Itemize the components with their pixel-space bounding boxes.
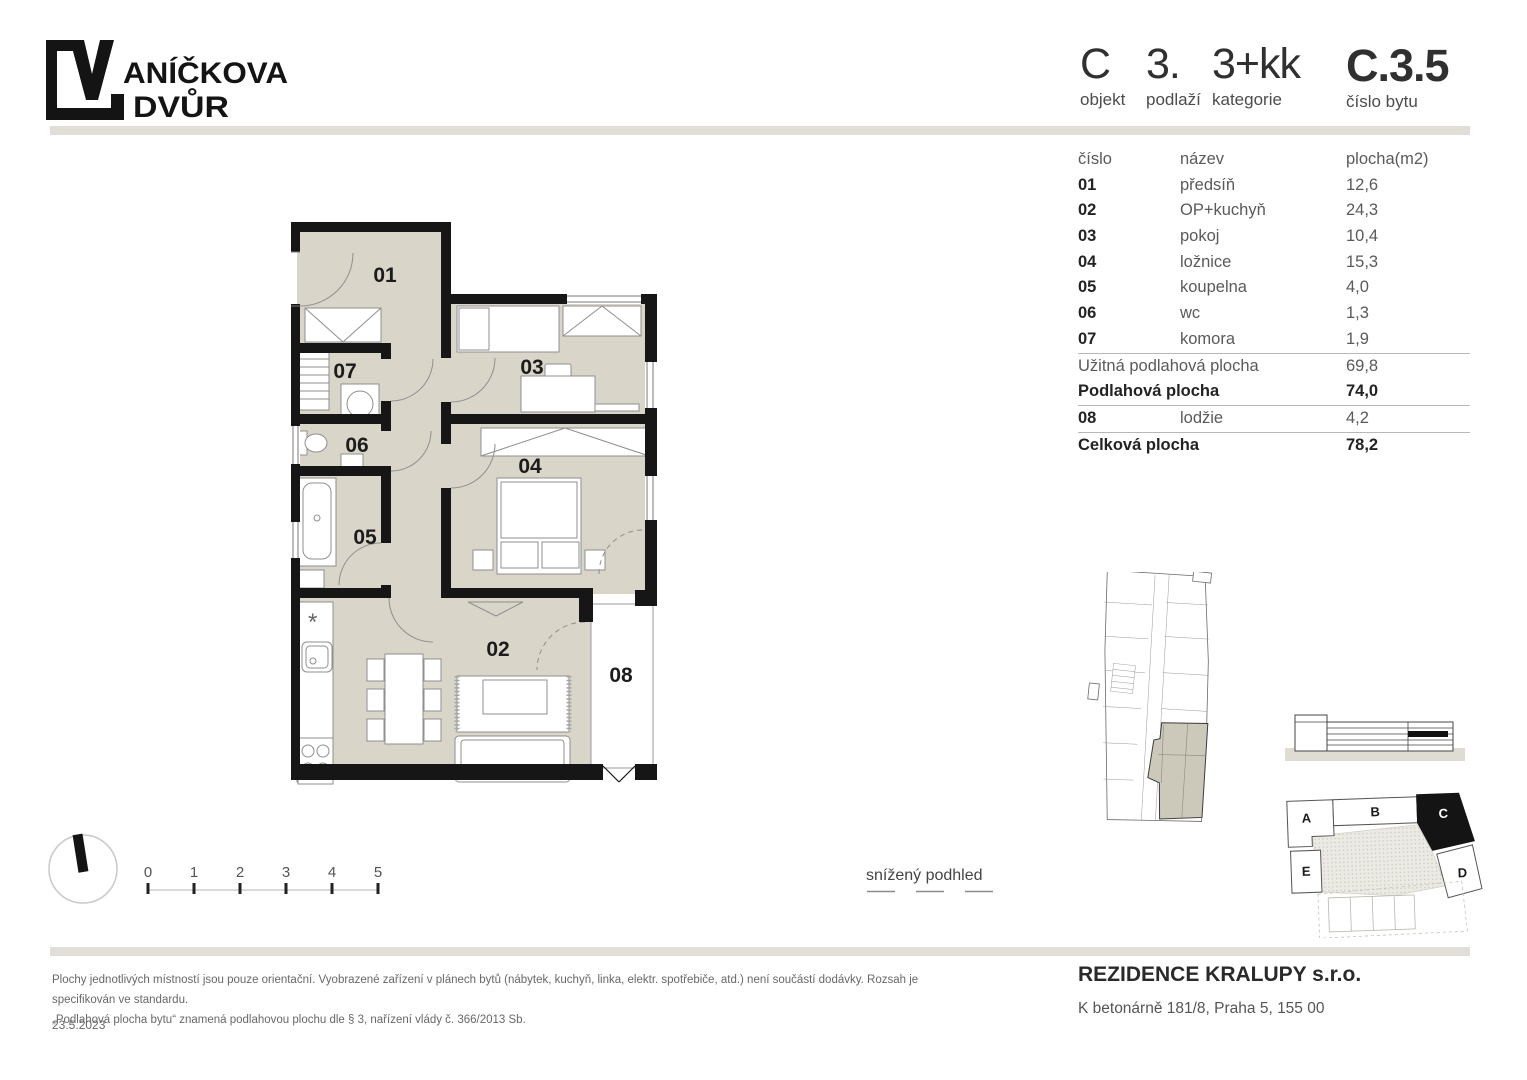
room-label-06: 06 [345, 434, 368, 457]
developer-address: K betonárně 181/8, Praha 5, 155 00 [1078, 1000, 1324, 1018]
total-area-label: Celková plocha [1078, 433, 1346, 459]
kategorie-value: 3+kk [1212, 42, 1300, 87]
table-row: 06 wc 1,3 [1078, 301, 1470, 327]
usable-area-row: Užitná podlahová plocha 69,8 [1078, 353, 1470, 380]
scale-tick-0: 0 [144, 864, 152, 881]
room-area-table: číslo název plocha(m2) 01 předsíň 12,6 0… [1078, 147, 1470, 458]
building-a-label: A [1301, 810, 1312, 825]
room-label-04: 04 [518, 455, 542, 478]
disclaimer-line2: „Podlahová plocha bytu“ znamená podlahov… [52, 1011, 952, 1031]
scale-tick-5: 5 [374, 864, 382, 881]
document-date: 23.5.2023 [52, 1018, 105, 1032]
logo-v-icon [70, 40, 114, 100]
header-field-objekt: C objekt [1080, 42, 1125, 110]
room-label-05: 05 [353, 526, 377, 549]
objekt-label: objekt [1080, 90, 1125, 110]
brand-name-line2: DVŮR [133, 88, 229, 124]
usable-area-value: 69,8 [1346, 354, 1470, 380]
legend-snizeny-podhled: snížený podhled [866, 867, 983, 885]
table-row: 02 OP+kuchyň 24,3 [1078, 198, 1470, 224]
disclaimer-line1: Plochy jednotlivých místností jsou pouze… [52, 971, 952, 1011]
north-compass-icon [44, 830, 122, 908]
col-header-cislo: číslo [1078, 147, 1180, 173]
room-label-03: 03 [520, 356, 543, 379]
floor-key-plan [1080, 572, 1232, 828]
table-row: 04 ložnice 15,3 [1078, 250, 1470, 276]
table-header-row: číslo název plocha(m2) [1078, 147, 1470, 173]
scale-tick-1: 1 [190, 864, 198, 881]
table-row: 01 předsíň 12,6 [1078, 173, 1470, 199]
dashed-line-sample [866, 889, 996, 894]
header-field-cislo-bytu: C.3.5 číslo bytu [1346, 42, 1449, 112]
table-row: 08 lodžie 4,2 [1078, 405, 1470, 432]
floor-area-value: 74,0 [1346, 379, 1470, 405]
building-elevation [1283, 712, 1468, 764]
objekt-value: C [1080, 42, 1125, 87]
floor-area-label: Podlahová plocha [1078, 379, 1346, 405]
scale-bar: 0 1 2 3 4 5 [138, 862, 394, 898]
scale-tick-2: 2 [236, 864, 244, 881]
room-label-01: 01 [373, 264, 397, 287]
table-row: 07 komora 1,9 [1078, 327, 1470, 353]
brand-logo: ANÍČKOVA DVŮR [45, 38, 295, 126]
footer-divider [50, 947, 1470, 956]
podlazi-value: 3. [1146, 42, 1201, 87]
elevation-floor-highlight [1408, 731, 1448, 737]
kitchen-symbol: * [308, 609, 317, 636]
header-divider [50, 126, 1470, 135]
floor-plan: * [285, 218, 665, 803]
podlazi-label: podlaží [1146, 90, 1201, 110]
brand-name-line1: ANÍČKOVA [123, 56, 288, 90]
kategorie-label: kategorie [1212, 90, 1300, 110]
disclaimer-text: Plochy jednotlivých místností jsou pouze… [52, 971, 952, 1030]
usable-area-label: Užitná podlahová plocha [1078, 354, 1346, 380]
header-field-kategorie: 3+kk kategorie [1212, 42, 1300, 110]
cislo-bytu-value: C.3.5 [1346, 42, 1449, 89]
table-row: 05 koupelna 4,0 [1078, 275, 1470, 301]
building-b-label: B [1370, 804, 1380, 819]
floorplan-document: { "brand": { "name_full": "VANÍČKOVA DVŮ… [0, 0, 1527, 1080]
room-label-08: 08 [609, 664, 633, 687]
col-header-plocha: plocha(m2) [1346, 147, 1470, 173]
building-c-label: C [1438, 806, 1449, 821]
building-e-label: E [1302, 864, 1312, 879]
site-plan: A B C D E [1283, 788, 1488, 938]
building-d-label: D [1457, 865, 1467, 880]
room-label-02: 02 [486, 638, 509, 661]
scale-tick-4: 4 [328, 864, 336, 881]
header-field-podlazi: 3. podlaží [1146, 42, 1201, 110]
total-area-row: Celková plocha 78,2 [1078, 432, 1470, 459]
developer-company: REZIDENCE KRALUPY s.r.o. [1078, 963, 1361, 987]
table-row: 03 pokoj 10,4 [1078, 224, 1470, 250]
room-label-07: 07 [333, 360, 356, 383]
col-header-nazev: název [1180, 147, 1346, 173]
cislo-bytu-label: číslo bytu [1346, 92, 1449, 112]
total-area-value: 78,2 [1346, 433, 1470, 459]
scale-tick-3: 3 [282, 864, 290, 881]
floor-area-row: Podlahová plocha 74,0 [1078, 379, 1470, 405]
